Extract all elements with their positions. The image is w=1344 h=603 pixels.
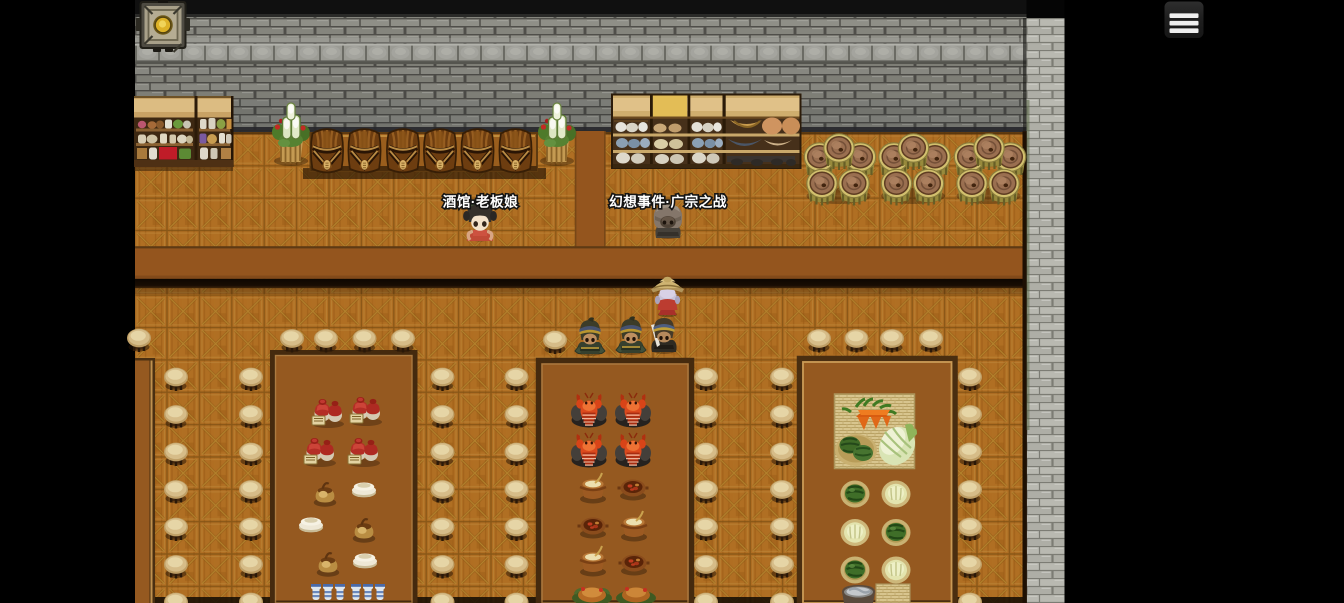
svg-text:酒馆·老板娘: 酒馆·老板娘 <box>443 194 519 210</box>
svg-text:幻想事件·广宗之战: 幻想事件·广宗之战 <box>609 194 727 210</box>
